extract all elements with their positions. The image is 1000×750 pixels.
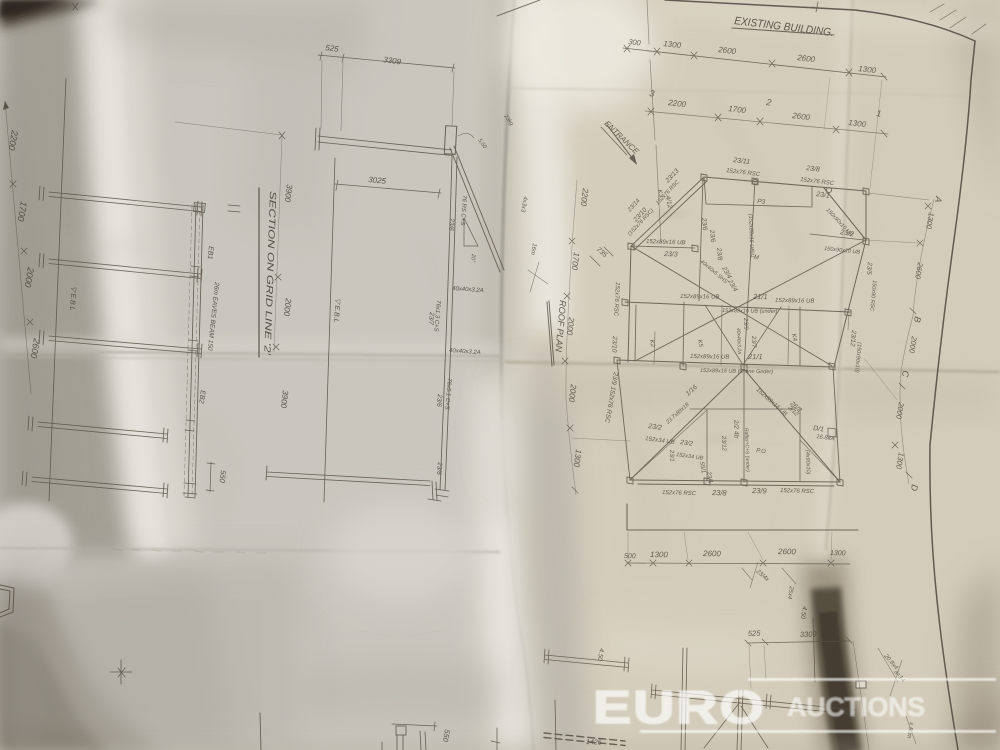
- svg-text:23/9: 23/9: [751, 486, 768, 496]
- svg-text:152x89x16 UB: 152x89x16 UB: [680, 294, 719, 301]
- svg-text:23/6: 23/6: [700, 217, 708, 232]
- svg-text:2/2 4b: 2/2 4b: [732, 419, 740, 439]
- svg-text:152x76 RSC: 152x76 RSC: [780, 488, 815, 495]
- svg-text:550: 550: [217, 470, 228, 484]
- svg-text:23/12: 23/12: [720, 435, 727, 452]
- svg-text:23/10: 23/10: [610, 335, 618, 353]
- svg-text:23/3: 23/3: [663, 251, 678, 259]
- svg-text:3025: 3025: [368, 175, 387, 186]
- svg-text:23/1: 23/1: [668, 449, 674, 462]
- svg-text:23/7: 23/7: [427, 311, 435, 326]
- svg-text:21/1: 21/1: [747, 352, 763, 361]
- svg-text:(4x90x10): (4x90x10): [804, 450, 811, 475]
- svg-text:P3: P3: [757, 198, 766, 206]
- svg-text:23/5: 23/5: [865, 261, 873, 276]
- svg-text:152x89x16 UB: 152x89x16 UB: [775, 298, 814, 305]
- svg-text:EURO: EURO: [593, 682, 766, 733]
- svg-text:525: 525: [325, 43, 340, 54]
- svg-text:23/6: 23/6: [435, 393, 443, 408]
- svg-text:23/6: 23/6: [708, 229, 716, 244]
- svg-text:1425: 1425: [586, 739, 602, 747]
- svg-text:300: 300: [628, 37, 642, 48]
- svg-text:40x40x3.2A: 40x40x3.2A: [735, 328, 742, 355]
- svg-text:1300: 1300: [650, 550, 669, 559]
- svg-text:152x76 RSC: 152x76 RSC: [662, 490, 697, 497]
- svg-text:152x89x16 UB: 152x89x16 UB: [690, 354, 729, 361]
- svg-text:152x89x16 UB (Crane Girder): 152x89x16 UB (Crane Girder): [700, 368, 773, 375]
- svg-text:23/6: 23/6: [447, 217, 455, 231]
- svg-text:23/8: 23/8: [715, 247, 723, 262]
- svg-text:21/1: 21/1: [752, 292, 768, 301]
- svg-text:3309: 3309: [800, 629, 818, 639]
- svg-text:23/9: 23/9: [742, 317, 748, 331]
- svg-text:AUCTIONS: AUCTIONS: [787, 692, 925, 722]
- svg-text:23/7: 23/7: [750, 335, 756, 349]
- svg-text:23/6: 23/6: [435, 461, 443, 476]
- svg-text:2600: 2600: [777, 547, 797, 556]
- svg-text:EB1: EB1: [206, 246, 214, 260]
- svg-text:500: 500: [624, 553, 636, 560]
- svg-text:23/8: 23/8: [711, 488, 728, 498]
- svg-text:1300: 1300: [830, 550, 846, 557]
- svg-text:20°: 20°: [469, 253, 476, 264]
- svg-text:525: 525: [748, 629, 762, 638]
- svg-text:2600: 2600: [702, 549, 722, 558]
- svg-text:152x89x16 UB (under): 152x89x16 UB (under): [722, 308, 778, 315]
